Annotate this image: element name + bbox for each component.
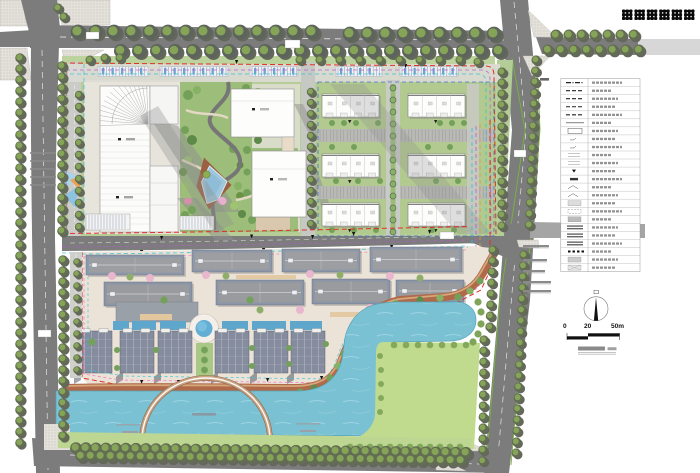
svg-text:50m: 50m: [611, 323, 624, 330]
svg-text:20: 20: [584, 323, 592, 330]
svg-text:0: 0: [563, 323, 567, 330]
